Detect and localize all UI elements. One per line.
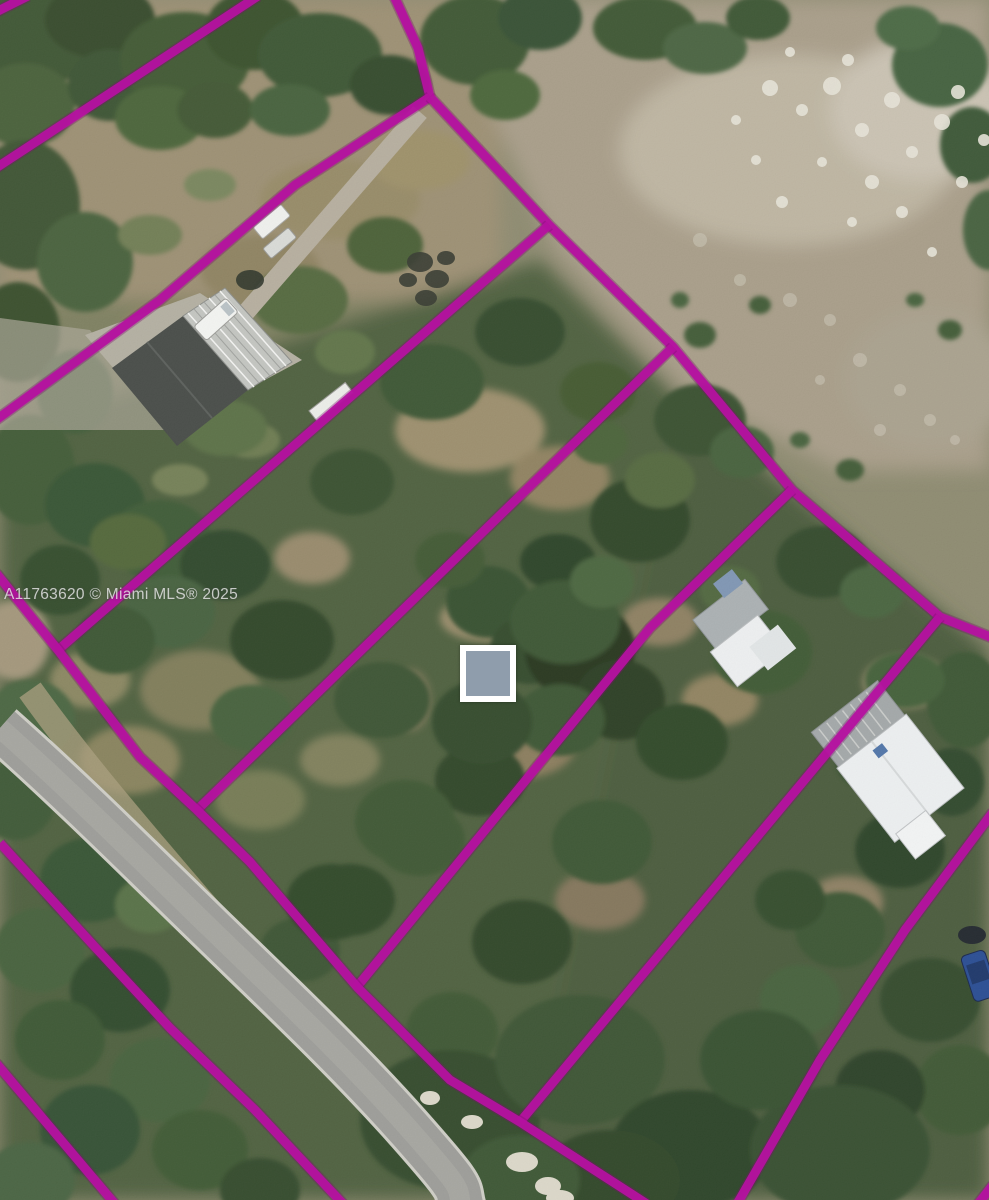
- mls-watermark: A11763620 © Miami MLS® 2025: [4, 586, 238, 604]
- subject-property-marker: [460, 645, 516, 702]
- mls-aerial-photo: A11763620 © Miami MLS® 2025: [0, 0, 989, 1200]
- subject-property-marker-fill: [466, 651, 510, 696]
